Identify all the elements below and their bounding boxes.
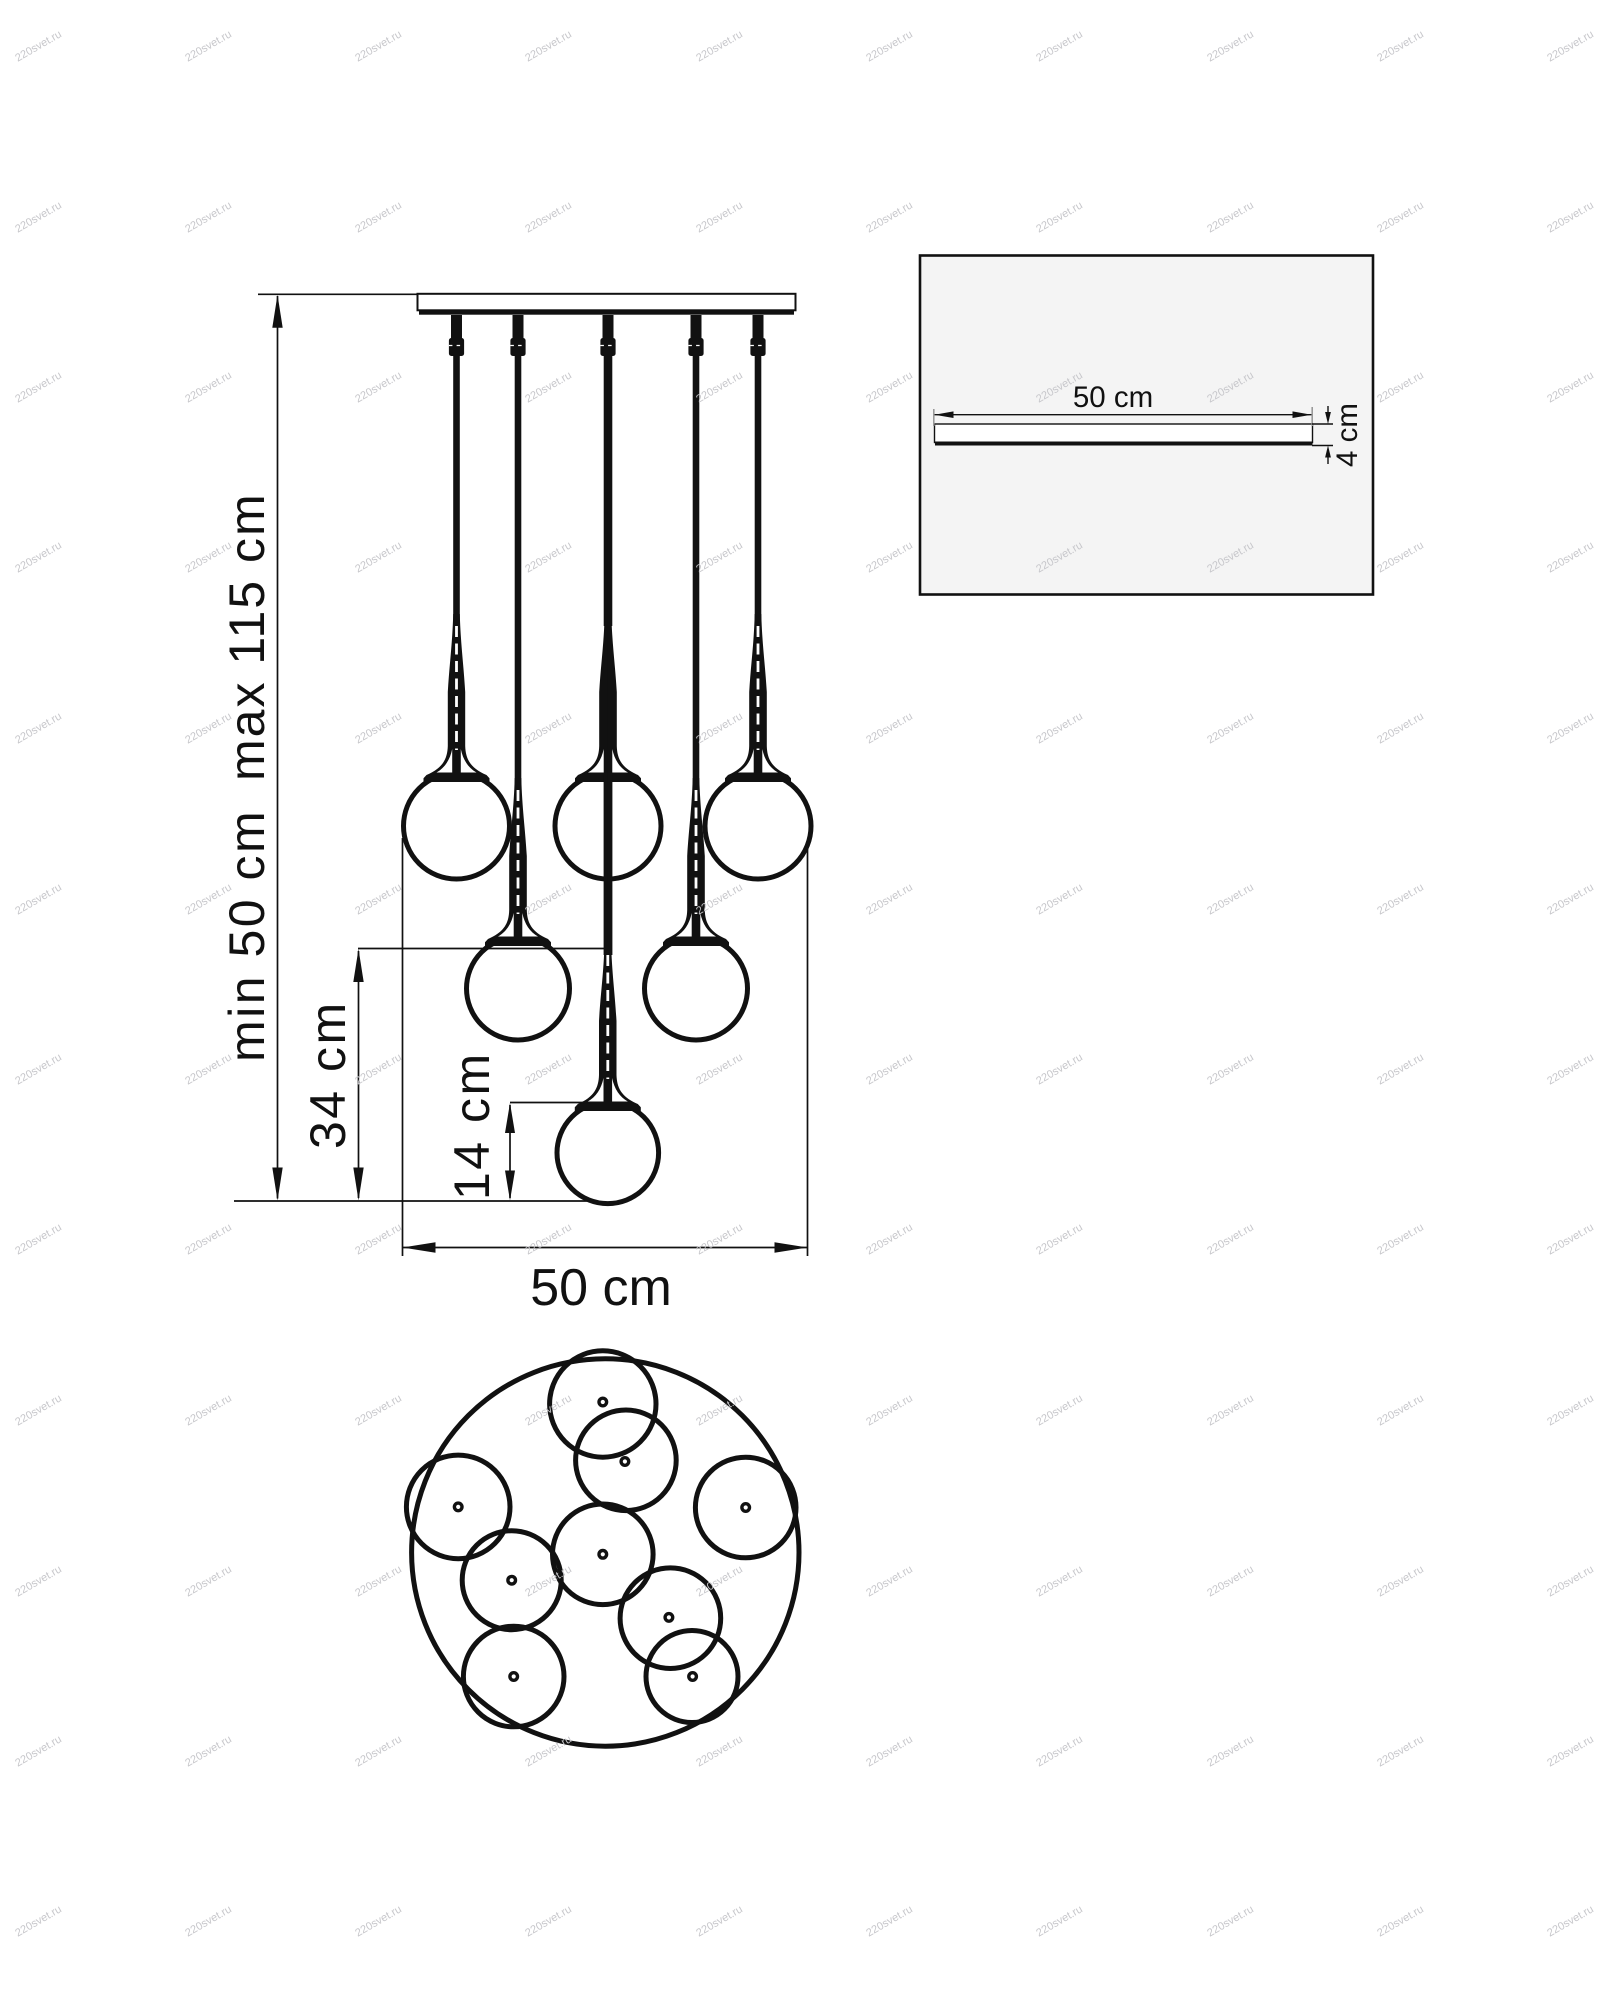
svg-text:34 cm: 34 cm (300, 1000, 356, 1149)
svg-text:14 cm: 14 cm (444, 1051, 500, 1200)
svg-text:max 115 cm: max 115 cm (219, 492, 275, 781)
svg-text:50 cm: 50 cm (530, 1259, 672, 1317)
svg-text:4 cm: 4 cm (1331, 403, 1364, 467)
svg-text:min 50 cm: min 50 cm (219, 809, 275, 1062)
svg-text:50 cm: 50 cm (1073, 381, 1153, 414)
